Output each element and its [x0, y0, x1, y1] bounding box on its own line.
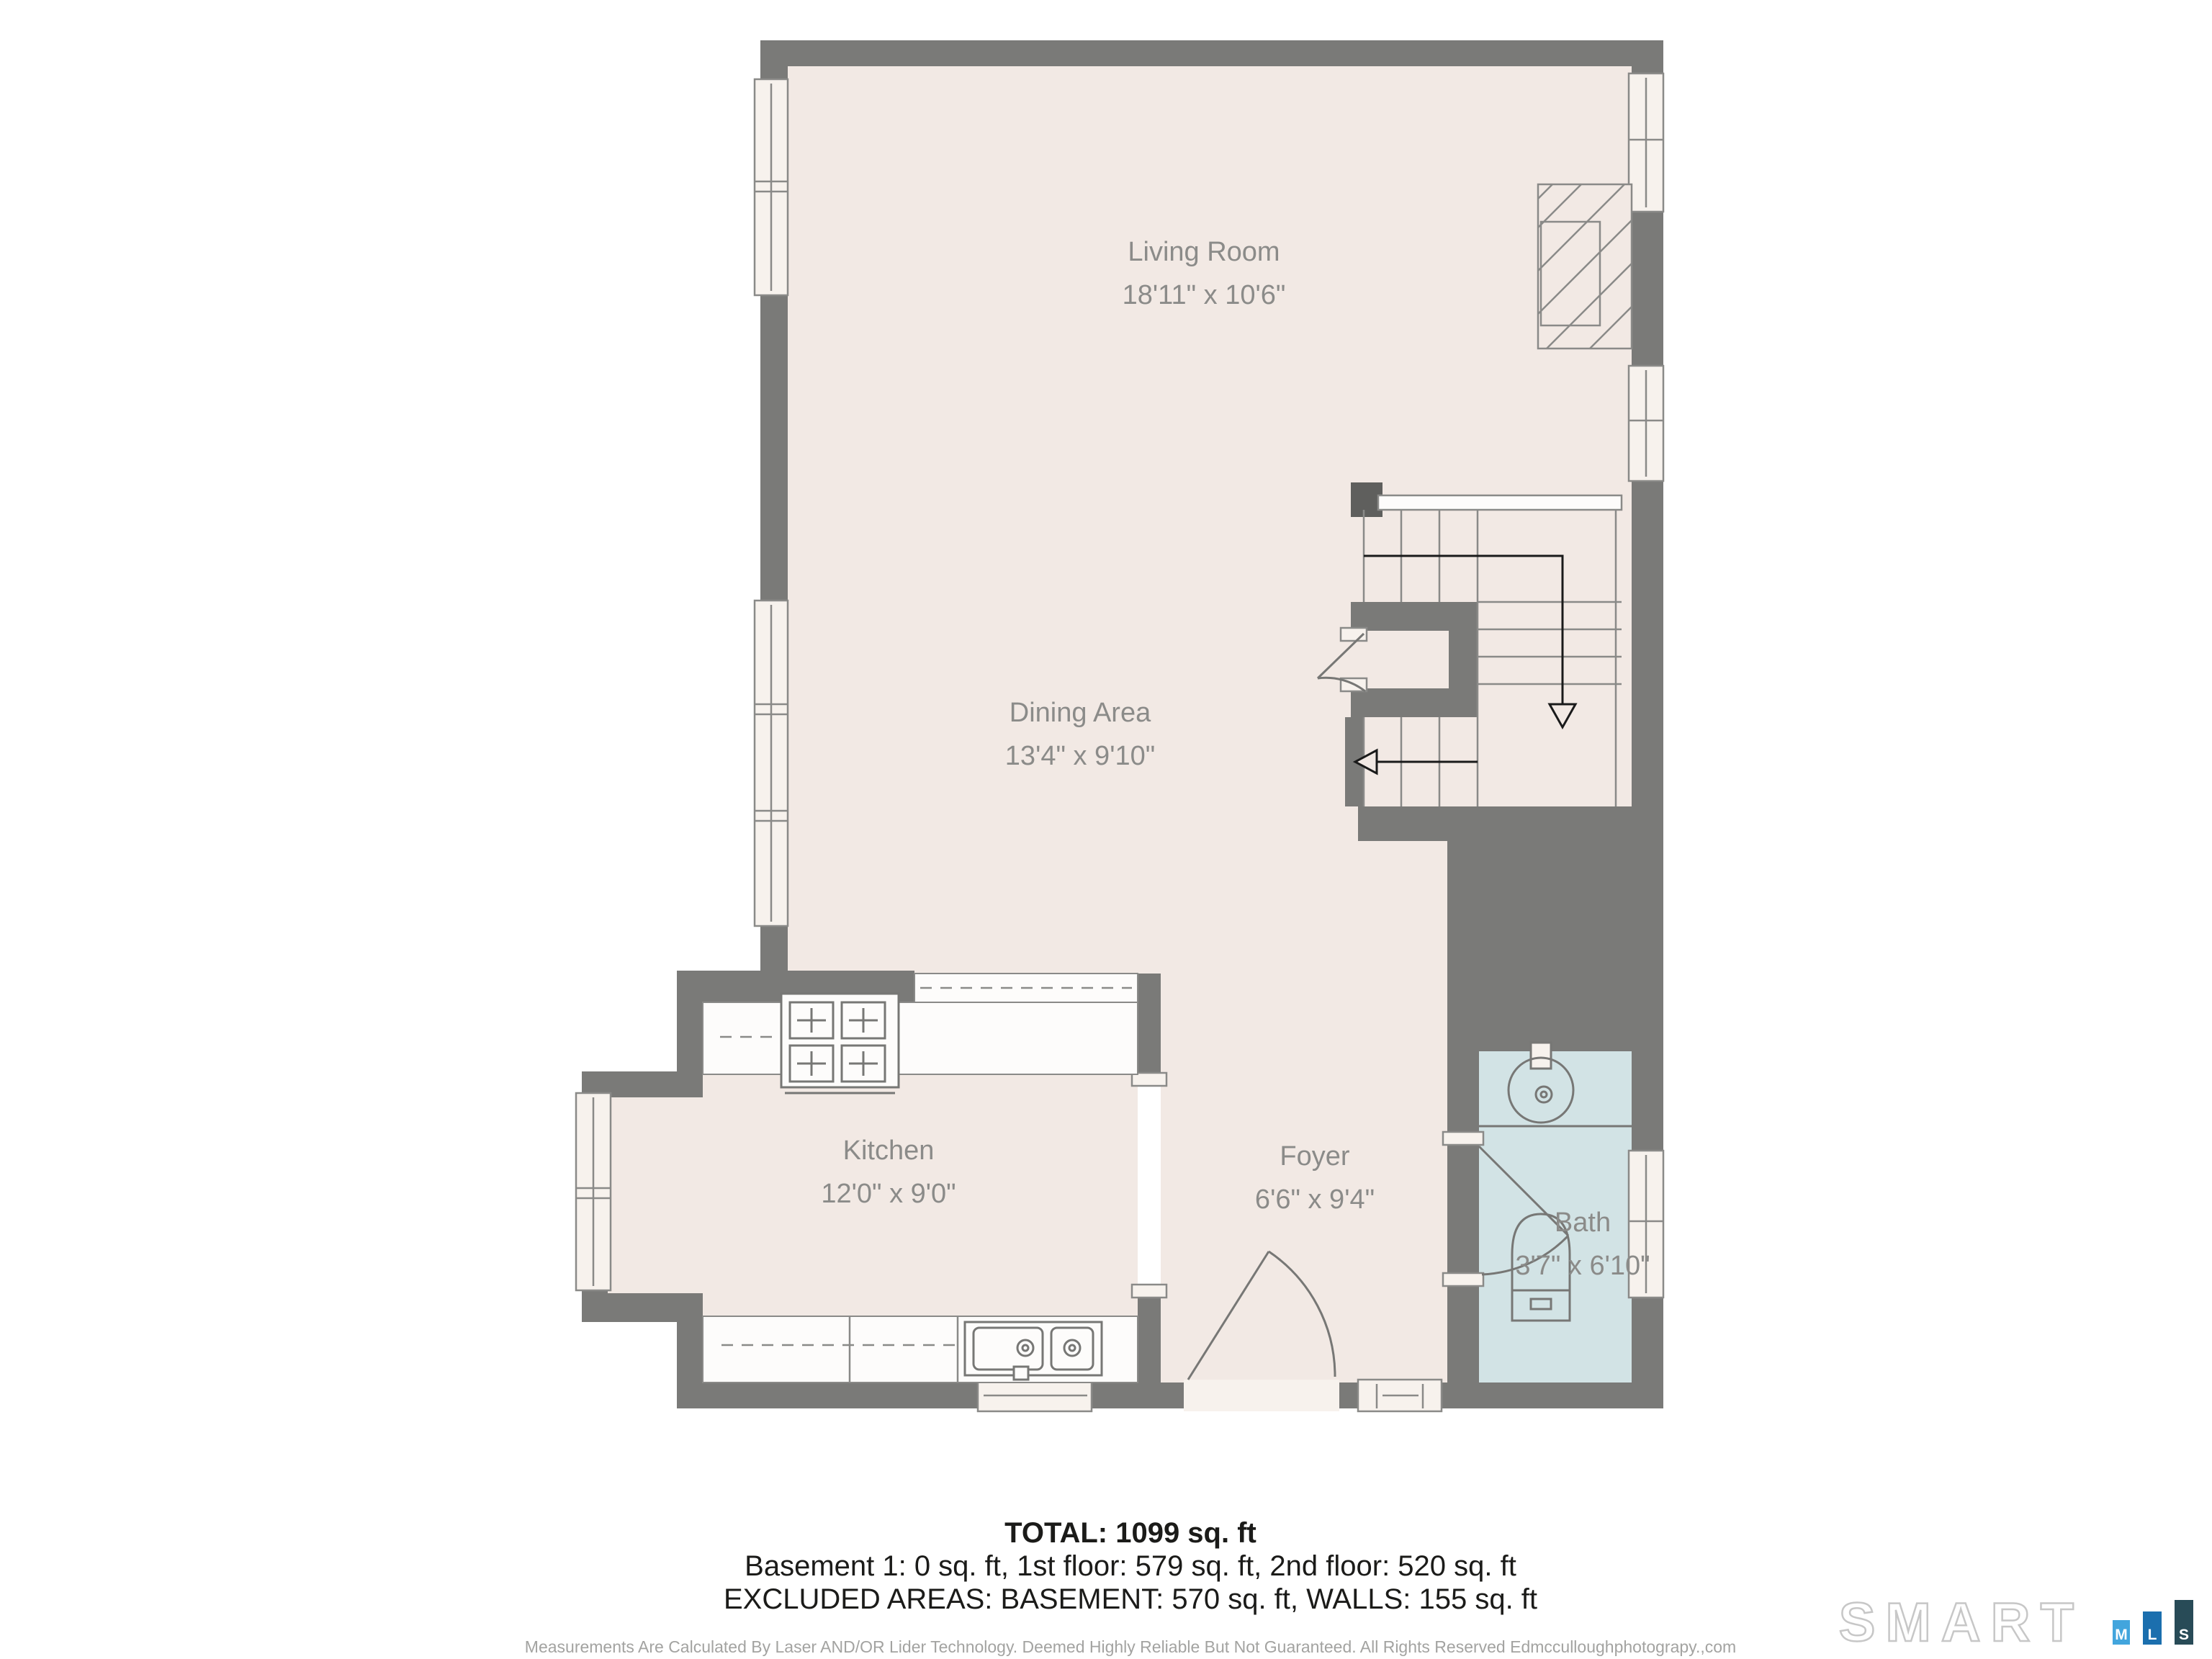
fireplace-icon: [1538, 184, 1632, 349]
logo-bar-m-label: M: [2115, 1626, 2128, 1645]
room-name: Foyer: [1255, 1135, 1375, 1178]
wall-closet-bottom: [1351, 688, 1478, 717]
wall-closet-right: [1449, 631, 1478, 688]
room-name: Bath: [1515, 1201, 1650, 1244]
room-label-kitchen: Kitchen 12'0" x 9'0": [821, 1129, 956, 1215]
stove-icon: [781, 994, 899, 1093]
room-name: Dining Area: [1005, 691, 1155, 734]
stairwell-floor: [1364, 487, 1632, 806]
floor-breakdown-text: Basement 1: 0 sq. ft, 1st floor: 579 sq.…: [50, 1550, 2211, 1583]
room-dimensions: 18'11" x 10'6": [1123, 274, 1286, 317]
logo-bar-l: L: [2143, 1611, 2162, 1645]
logo-bar-l-label: L: [2148, 1626, 2157, 1645]
wall-foyer-kitchen-bottom: [1138, 1296, 1161, 1382]
wall-mass-below-stairs: [1447, 841, 1663, 1051]
logo-bar-m: M: [2113, 1620, 2130, 1645]
logo-bar-s-label: S: [2179, 1626, 2189, 1645]
room-kitchen-bay-floor: [608, 1097, 703, 1293]
floor-plan-page: Living Room 18'11" x 10'6" Dining Area 1…: [0, 0, 2212, 1659]
logo-bar-s: S: [2175, 1600, 2193, 1645]
room-label-foyer: Foyer 6'6" x 9'4": [1255, 1135, 1375, 1221]
wall-kitchen-bay-connector: [677, 1322, 703, 1382]
room-dimensions: 12'0" x 9'0": [821, 1172, 956, 1215]
entry-door-threshold: [1184, 1380, 1339, 1411]
room-label-bath: Bath 3'7" x 6'10": [1515, 1201, 1650, 1287]
jamb-bath-door-bottom: [1443, 1273, 1483, 1286]
wall-closet-top: [1351, 602, 1478, 631]
kitchen-top-counter: [703, 1002, 1138, 1074]
wall-bottom: [677, 1382, 1663, 1408]
kitchen-bottom-counter: [703, 1316, 1138, 1382]
room-label-dining-area: Dining Area 13'4" x 9'10": [1005, 691, 1155, 778]
wall-stair-bottom: [1358, 806, 1663, 841]
room-label-living-room: Living Room 18'11" x 10'6": [1123, 230, 1286, 317]
wall-foyer-kitchen-top: [1138, 974, 1161, 1076]
total-area-text: TOTAL: 1099 sq. ft: [50, 1516, 2211, 1550]
smartmls-logo: SMART M L S: [1839, 1600, 2193, 1645]
wall-top: [760, 40, 1663, 66]
jamb-kitchen-doorway-bottom: [1132, 1285, 1166, 1298]
room-dimensions: 13'4" x 9'10": [1005, 734, 1155, 778]
room-dimensions: 6'6" x 9'4": [1255, 1178, 1375, 1221]
kitchen-peninsula-counter: [914, 974, 1138, 1005]
room-name: Living Room: [1123, 230, 1286, 274]
smart-logo-text: SMART: [1839, 1601, 2084, 1645]
jamb-bath-door-top: [1443, 1132, 1483, 1145]
stair-landing: [1378, 495, 1622, 510]
floor-plan: [0, 0, 2212, 1659]
wall-kitchen-bay-bottom: [582, 1293, 703, 1322]
room-dimensions: 3'7" x 6'10": [1515, 1244, 1650, 1287]
room-name: Kitchen: [821, 1129, 956, 1172]
wall-bath-left: [1447, 1051, 1479, 1382]
